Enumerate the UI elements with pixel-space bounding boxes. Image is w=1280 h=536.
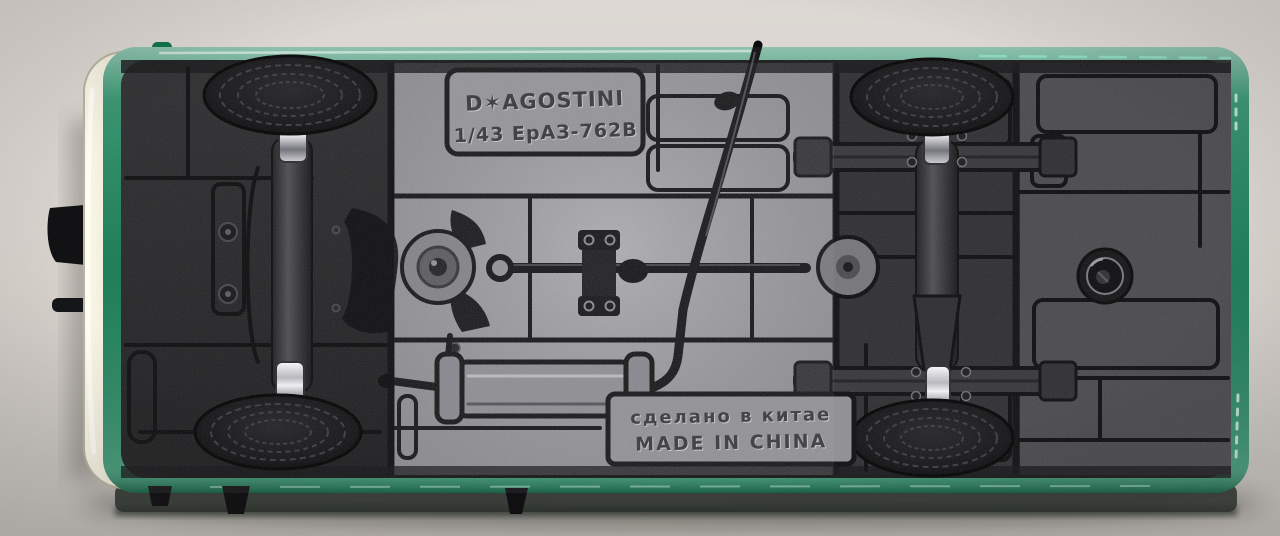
photo-vignette: [0, 0, 1280, 536]
model-underside-photo: D✶AGOSTINI D✶AGOSTINI 1/43 ЕрАЗ-762В 1/4…: [0, 0, 1280, 536]
photo-frame: D✶AGOSTINI D✶AGOSTINI 1/43 ЕрАЗ-762В 1/4…: [0, 0, 1280, 536]
